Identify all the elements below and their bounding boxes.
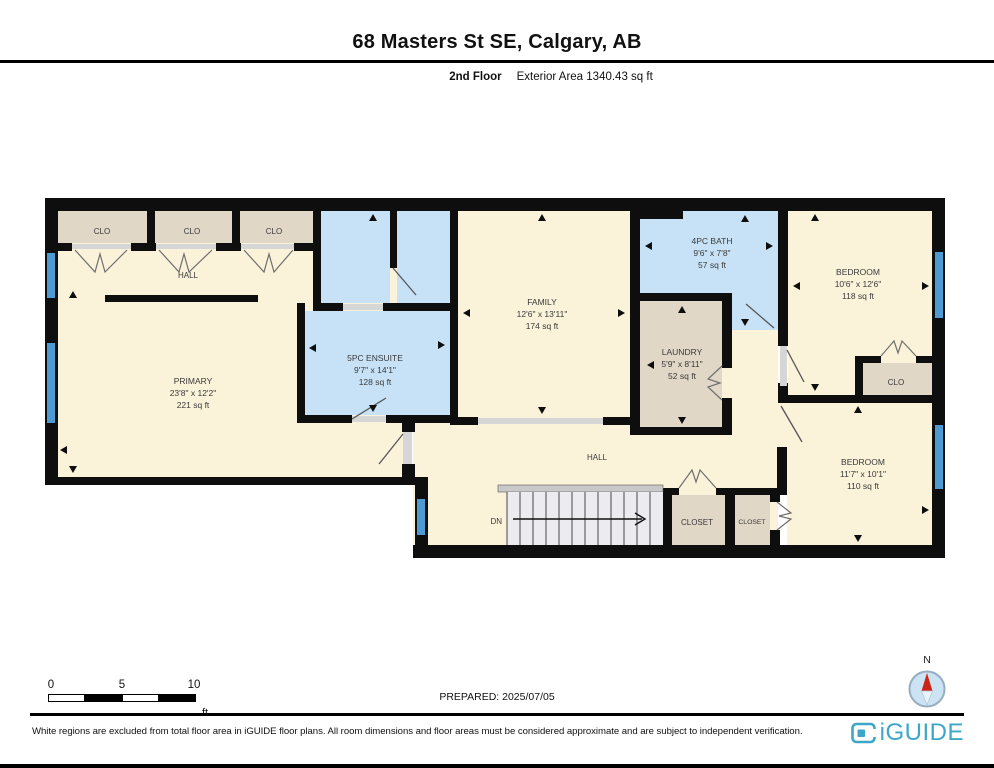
bedroom2-room-name: BEDROOM	[841, 457, 885, 467]
bedroom2-room-area: 110 sq ft	[847, 481, 880, 491]
laundry-room-name: LAUNDRY	[662, 347, 703, 357]
bedroom1-room-area: 118 sq ft	[842, 291, 875, 301]
stairs	[498, 485, 663, 545]
floor-plan-svg: CLO CLO CLO HALL PRIMARY 23'8" x 12'2" 2…	[45, 198, 945, 558]
clo3-label: CLO	[266, 227, 282, 236]
family-room-name: FAMILY	[527, 297, 557, 307]
primary-room-name: PRIMARY	[174, 376, 213, 386]
page-title: 68 Masters St SE, Calgary, AB	[0, 31, 994, 54]
hall-lower-label: HALL	[587, 453, 608, 462]
compass-north-label: N	[923, 654, 931, 666]
bedroom1-clo-label: CLO	[888, 378, 904, 387]
ensuite-room-name: 5PC ENSUITE	[347, 353, 403, 363]
disclaimer-text: White regions are excluded from total fl…	[32, 726, 803, 737]
hall-upper-label: HALL	[178, 271, 199, 280]
scale-tick-5: 5	[119, 679, 125, 691]
floor-plan: CLO CLO CLO HALL PRIMARY 23'8" x 12'2" 2…	[45, 198, 945, 558]
laundry-room-area: 52 sq ft	[668, 371, 697, 381]
iguide-logo: iGUIDE	[851, 719, 964, 747]
bedroom2-closet-label: CLOSET	[738, 519, 765, 526]
bath-room-dims: 9'6" x 7'8"	[693, 248, 730, 258]
bath-room-name: 4PC BATH	[692, 236, 733, 246]
floor-subtitle: 2nd Floor Exterior Area 1340.43 sq ft	[0, 71, 994, 83]
bedroom1-room-name: BEDROOM	[836, 267, 880, 277]
scale-tick-0: 0	[48, 679, 54, 691]
primary-room-area: 221 sq ft	[177, 400, 210, 410]
family-room-area: 174 sq ft	[526, 321, 559, 331]
primary-room-dims: 23'8" x 12'2"	[170, 388, 217, 398]
ensuite-room-dims: 9'7" x 14'1"	[354, 365, 396, 375]
clo1-label: CLO	[94, 227, 110, 236]
hall-closet-label: CLOSET	[681, 518, 713, 527]
family-room-dims: 12'6" x 13'11"	[517, 309, 568, 319]
stairs-dn-label: DN	[490, 517, 502, 526]
iguide-logo-icon	[851, 722, 876, 744]
scale-tick-10: 10	[188, 679, 201, 691]
footer-divider	[30, 713, 964, 716]
compass: N	[904, 651, 950, 715]
clo2-label: CLO	[184, 227, 200, 236]
bath-room-area: 57 sq ft	[698, 260, 727, 270]
laundry-room-dims: 5'9" x 8'11"	[661, 359, 702, 369]
bedroom1-room-dims: 10'6" x 12'6"	[835, 279, 882, 289]
page-bottom-border	[0, 764, 994, 768]
floor-label: 2nd Floor	[449, 71, 501, 83]
prepared-date: PREPARED: 2025/07/05	[0, 691, 994, 703]
ensuite-room-area: 128 sq ft	[359, 377, 392, 387]
iguide-logo-text: iGUIDE	[880, 719, 964, 747]
bedroom2-room-dims: 11'7" x 10'1"	[840, 469, 886, 479]
exterior-area-label: Exterior Area 1340.43 sq ft	[517, 71, 653, 83]
header-divider	[0, 60, 994, 63]
